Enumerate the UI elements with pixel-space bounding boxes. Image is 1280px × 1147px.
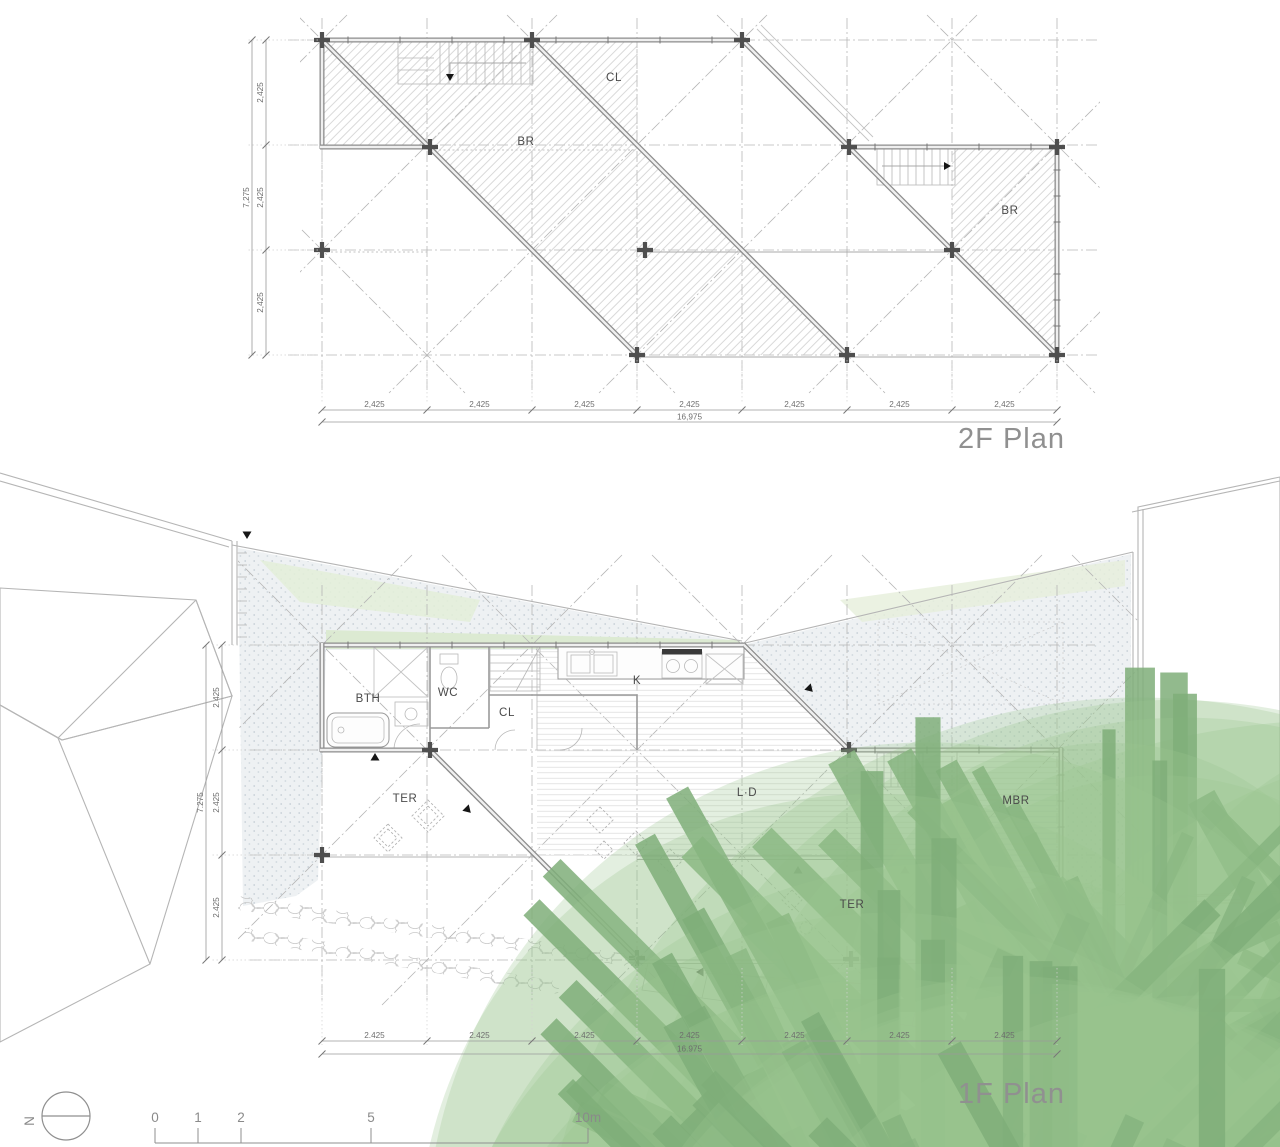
room-label-mbr: MBR	[1002, 795, 1029, 807]
toilet-bowl	[441, 667, 457, 689]
dim-label: 2.425	[784, 1031, 805, 1040]
dim-label: 2.425	[212, 897, 221, 918]
dim-label: 2,425	[574, 400, 595, 409]
hatch-br-right	[952, 147, 1057, 355]
floor-plan-drawing: CL BR BR 2,425 2,425 2,425 2,425 2,425 2…	[0, 0, 1280, 1147]
toilet-tank	[440, 654, 458, 664]
dim-total-label: 7,275	[242, 187, 251, 208]
plan-1f: BTH WC CL K L·D MBR TER TER 2.425 2.425 …	[0, 473, 1280, 1147]
plan-2f-title: 2F Plan	[958, 423, 1065, 455]
dim-label: 2,425	[679, 400, 700, 409]
room-label-bth: BTH	[356, 693, 381, 705]
bathtub	[327, 713, 389, 747]
dim-label: 2,425	[256, 82, 265, 103]
room-label-k: K	[633, 675, 641, 687]
room-label-br-2f: BR	[517, 136, 534, 148]
dim-label: 2,425	[364, 400, 385, 409]
dims-left-2f: 2,425 2,425 2,425 7,275	[242, 37, 318, 359]
room-label-cl-1f: CL	[499, 707, 515, 719]
dim-label: 2.425	[574, 1031, 595, 1040]
dim-label: 2.425	[212, 792, 221, 813]
cooktop-band	[662, 649, 702, 655]
room-label-cl-2f: CL	[606, 72, 622, 84]
hatch-br-band	[322, 40, 847, 355]
neighbor-roof-left	[0, 588, 232, 1042]
stair-1f	[490, 647, 540, 691]
north-symbol: N	[22, 1092, 90, 1140]
plan-1f-title: 1F Plan	[958, 1078, 1065, 1110]
dim-label: 2.425	[469, 1031, 490, 1040]
scale-tick-label: 2	[237, 1110, 245, 1125]
drawing-sheet: CL BR BR 2,425 2,425 2,425 2,425 2,425 2…	[0, 0, 1280, 1147]
stair-2f-right	[877, 149, 955, 185]
dim-total-label: 7.275	[196, 792, 205, 813]
dims-bottom-2f: 2,425 2,425 2,425 2,425 2,425 2,425 2,42…	[319, 360, 1061, 426]
scale-tick-label: 1	[194, 1110, 202, 1125]
scale-tick-label: 10m	[575, 1110, 601, 1125]
scale-tick-label: 5	[367, 1110, 375, 1125]
room-label-ter-left: TER	[393, 793, 418, 805]
dim-label: 2,425	[256, 292, 265, 313]
dim-label: 2,425	[469, 400, 490, 409]
dim-label: 2.425	[679, 1031, 700, 1040]
dim-label: 2,425	[889, 400, 910, 409]
dim-label: 2.425	[889, 1031, 910, 1040]
north-label: N	[22, 1116, 37, 1126]
dim-label: 2,425	[994, 400, 1015, 409]
dim-label: 2,425	[256, 187, 265, 208]
room-label-br2-2f: BR	[1001, 205, 1018, 217]
dim-label: 2.425	[364, 1031, 385, 1040]
room-label-ld: L·D	[737, 787, 757, 799]
scale-tick-label: 0	[151, 1110, 159, 1125]
room-label-wc: WC	[438, 687, 458, 699]
dim-total-label: 16.975	[677, 1045, 702, 1054]
dim-label: 2.425	[994, 1031, 1015, 1040]
dim-label: 2.425	[212, 687, 221, 708]
dim-label: 2,425	[784, 400, 805, 409]
dim-total-label: 16,975	[677, 413, 702, 422]
plan-2f: CL BR BR 2,425 2,425 2,425 2,425 2,425 2…	[0, 15, 1280, 455]
room-label-ter-south: TER	[840, 899, 865, 911]
washbasin	[405, 708, 417, 720]
